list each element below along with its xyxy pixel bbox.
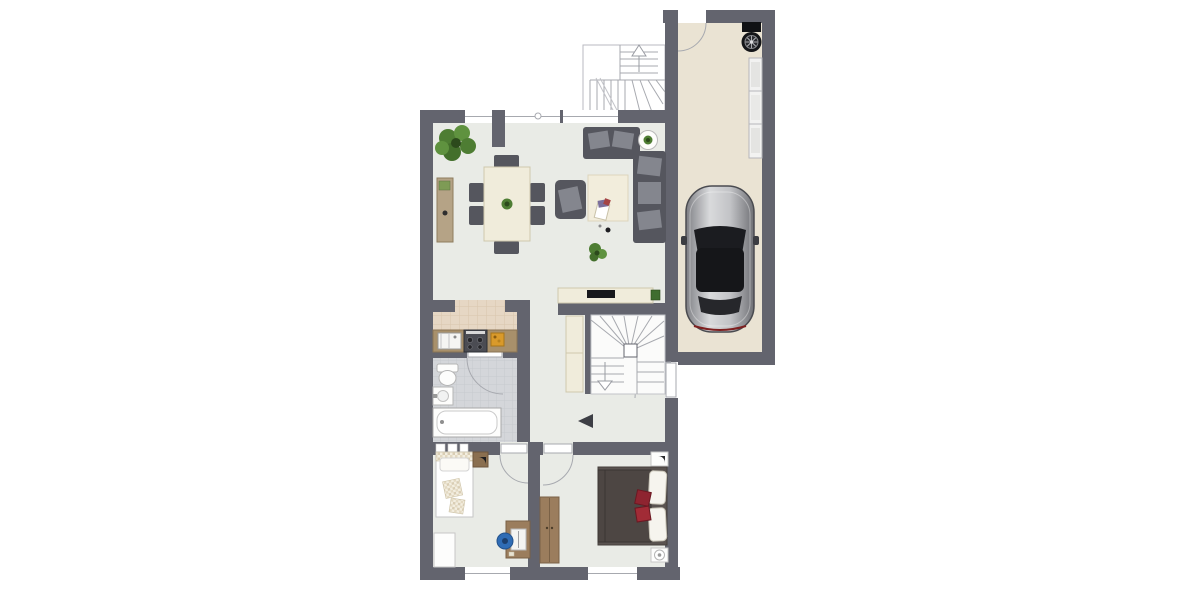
wall-hall-bottom-mid	[528, 442, 543, 455]
kitchen	[433, 330, 517, 352]
child-nightstand	[473, 452, 488, 467]
toilet	[437, 364, 458, 386]
shelf-unit	[749, 58, 762, 158]
wall-kitchen-right	[517, 300, 530, 442]
car-top-view	[681, 186, 759, 332]
nightstand-with-lamp	[651, 548, 668, 562]
chair	[469, 183, 484, 202]
double-bed	[598, 467, 667, 545]
chair	[469, 206, 484, 225]
three-seat-sofa	[633, 151, 666, 243]
pillow	[648, 508, 667, 542]
wall-hall-top	[558, 303, 678, 315]
spare-wheel	[742, 22, 762, 52]
bedroom-window	[588, 567, 637, 580]
two-seat-sofa	[583, 127, 640, 159]
wardrobe	[540, 497, 559, 563]
red-pillow	[635, 506, 651, 522]
stair-newel	[624, 344, 637, 357]
floor-plan	[0, 0, 1200, 600]
wall-garage-bottom	[676, 352, 775, 365]
living-window-right	[563, 110, 618, 123]
hall-cabinet	[566, 316, 583, 392]
bathtub	[433, 408, 501, 437]
cutting-board	[491, 333, 504, 346]
hallway	[566, 315, 665, 394]
wall-stub-top	[492, 110, 505, 147]
chair	[494, 241, 519, 254]
wall-garage-right	[762, 10, 775, 365]
floor-plan-canvas	[0, 0, 1200, 600]
living-window-mid	[505, 110, 560, 123]
car-roof	[696, 248, 744, 292]
wall-kitchen-stub-left	[433, 300, 455, 312]
kitchen-sink	[438, 333, 461, 349]
winder-staircase-down	[591, 315, 665, 394]
sideboard	[437, 178, 453, 242]
tv	[587, 290, 615, 298]
stair-outline	[583, 45, 665, 112]
chair	[530, 183, 545, 202]
living-window-left	[465, 110, 492, 123]
pillow	[648, 471, 667, 505]
red-pillow	[635, 490, 652, 507]
stove	[464, 330, 487, 352]
chair	[530, 206, 545, 225]
wall-bottom	[420, 567, 680, 580]
wall-left	[420, 110, 433, 580]
mirror-left	[681, 236, 687, 245]
armchair	[555, 180, 586, 219]
chair	[494, 155, 519, 168]
single-bed	[436, 452, 473, 517]
side-table-with-plant	[639, 131, 658, 150]
child-room-window	[465, 567, 510, 580]
white-dresser	[434, 533, 455, 567]
mirror-right	[753, 236, 759, 245]
nightstand-top	[651, 452, 668, 466]
washbasin	[433, 387, 453, 405]
tv-lowboard	[558, 288, 660, 303]
exterior-staircase	[583, 45, 665, 112]
wall-stair-side	[585, 315, 591, 394]
plant-box	[651, 290, 660, 300]
